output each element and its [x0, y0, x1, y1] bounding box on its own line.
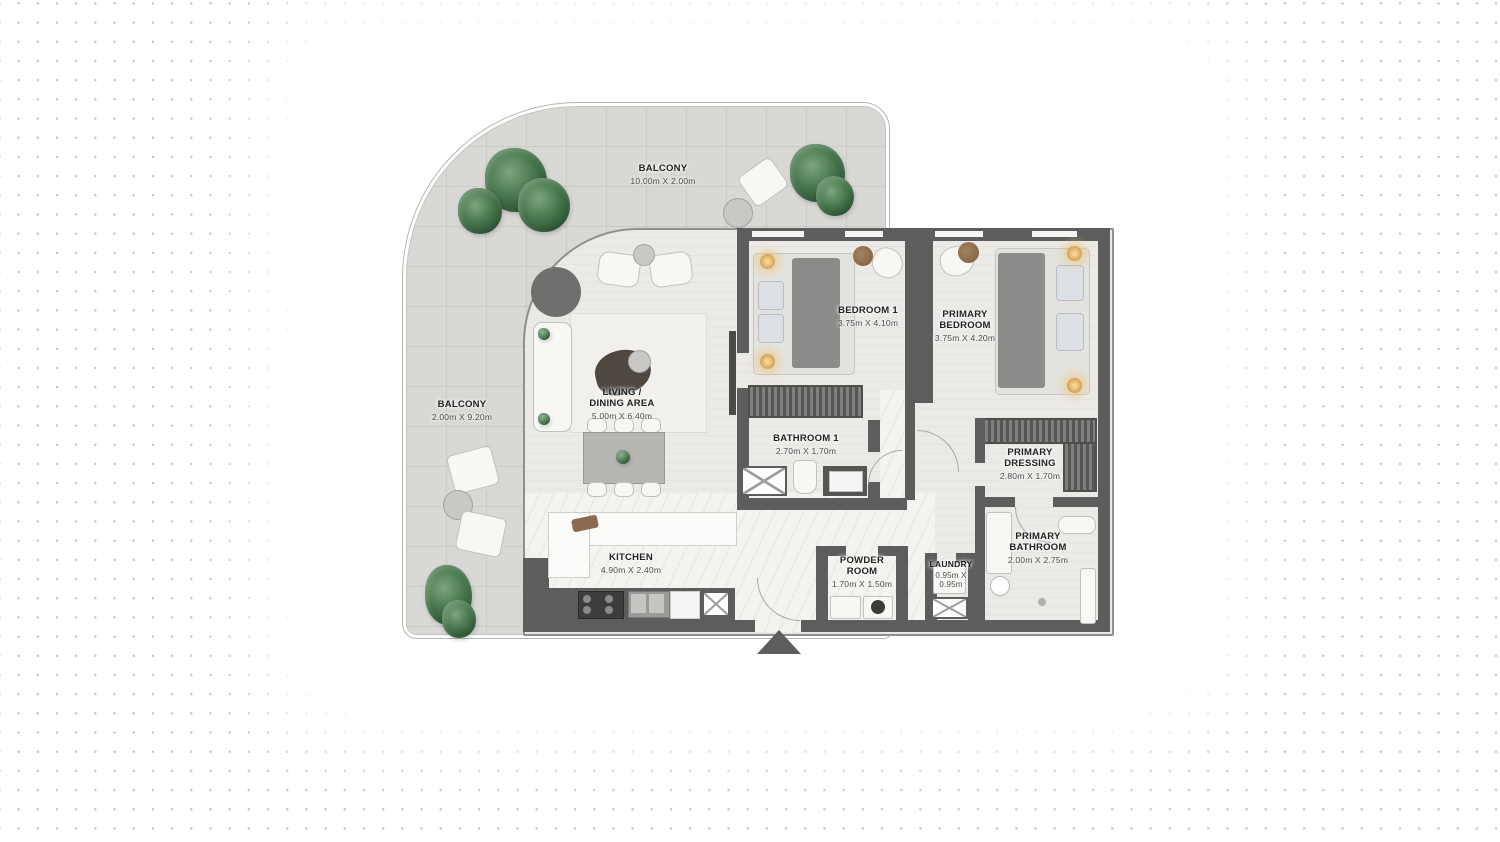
- window: [1032, 231, 1077, 237]
- room-dims: 1.70m X 1.50m: [832, 579, 892, 589]
- room-label-balcony-top: BALCONY 10.00m X 2.00m: [603, 164, 723, 186]
- room-name: BALCONY: [422, 400, 502, 411]
- room-label-primary-bedroom: PRIMARY BEDROOM 3.75m X 4.20m: [930, 310, 1000, 343]
- dressing-wardrobe: [977, 418, 1097, 444]
- dining-chair: [614, 482, 634, 497]
- room-dims: 3.75m X 4.10m: [838, 318, 898, 328]
- shower-bench: [1080, 568, 1096, 624]
- kitchen-counter: [670, 591, 700, 619]
- room-dims: 2.80m X 1.70m: [1000, 471, 1060, 481]
- pillow: [1056, 313, 1084, 351]
- plant-icon: [442, 600, 476, 638]
- powder-sink: [830, 596, 861, 619]
- room-name: BALCONY: [603, 164, 723, 175]
- side-table: [958, 242, 979, 263]
- laundry-appliance: [931, 597, 968, 619]
- room-dims: 2.00m X 2.75m: [1008, 555, 1068, 565]
- burner: [605, 606, 613, 614]
- wall-bathroom1-bottom: [737, 498, 907, 510]
- small-round-table: [633, 244, 655, 266]
- pillow: [1056, 265, 1084, 301]
- room-name: PRIMARY DRESSING: [995, 448, 1065, 470]
- wall-primary-bath-top: [985, 497, 1015, 507]
- wall-powder-left: [816, 546, 828, 622]
- burner: [583, 606, 591, 614]
- wall-primary-bath-top: [1053, 497, 1098, 507]
- room-label-powder-room: POWDER ROOM 1.70m X 1.50m: [832, 556, 892, 589]
- round-side-table: [531, 267, 581, 317]
- room-name: BEDROOM 1: [810, 306, 926, 317]
- room-dims: 0.95m X 0.95m: [928, 571, 974, 590]
- side-table: [853, 246, 873, 266]
- wall-bathroom1-right: [868, 420, 880, 452]
- room-name: LIVING / DINING AREA: [587, 388, 657, 410]
- room-label-kitchen: KITCHEN 4.90m X 2.40m: [581, 553, 681, 575]
- room-dims: 2.00m X 9.20m: [432, 412, 492, 422]
- plant-icon: [616, 450, 630, 464]
- dining-chair: [587, 482, 607, 497]
- room-name: BATHROOM 1: [750, 434, 862, 445]
- wall-bathroom1-right: [868, 482, 880, 510]
- toilet: [793, 460, 817, 494]
- room-dims: 2.70m X 1.70m: [776, 446, 836, 456]
- toilet-top-icon: [871, 600, 885, 614]
- room-label-living-dining: LIVING / DINING AREA 5.00m X 6.40m: [587, 388, 657, 421]
- wall-right: [1098, 228, 1110, 632]
- room-label-primary-dressing: PRIMARY DRESSING 2.80m X 1.70m: [995, 448, 1065, 481]
- plant-icon: [518, 178, 570, 232]
- room-label-primary-bathroom: PRIMARY BATHROOM 2.00m X 2.75m: [1003, 532, 1073, 565]
- dining-chair: [641, 482, 661, 497]
- burner: [583, 595, 591, 603]
- burner: [605, 595, 613, 603]
- plant-icon: [816, 176, 854, 216]
- room-label-balcony-left: BALCONY 2.00m X 9.20m: [422, 400, 502, 422]
- room-name: KITCHEN: [581, 553, 681, 564]
- floor-plan-page: BALCONY 10.00m X 2.00m BALCONY 2.00m X 9…: [0, 0, 1500, 842]
- bedroom1-wardrobe: [748, 385, 863, 418]
- shower-tray: [741, 466, 787, 496]
- plant-icon: [538, 413, 550, 425]
- room-dims: 4.90m X 2.40m: [601, 565, 661, 575]
- shower-drain: [1038, 598, 1046, 606]
- wall-bedroom1-left: [737, 228, 749, 353]
- bedside-lamp: [760, 254, 775, 269]
- plant-icon: [538, 328, 550, 340]
- floor-plan: BALCONY 10.00m X 2.00m BALCONY 2.00m X 9…: [400, 98, 1112, 660]
- room-name: POWDER ROOM: [832, 556, 892, 578]
- pillow: [758, 281, 784, 310]
- sink-basin: [829, 471, 863, 492]
- room-dims: 5.00m X 6.40m: [592, 411, 652, 421]
- room-label-bathroom-1: BATHROOM 1 2.70m X 1.70m: [750, 434, 862, 456]
- sink-bowl: [649, 594, 664, 613]
- dressing-wardrobe: [1063, 442, 1097, 492]
- wall-powder-right: [896, 546, 908, 622]
- bedside-lamp: [1067, 246, 1082, 261]
- balcony-round-table: [723, 198, 753, 228]
- room-dims: 10.00m X 2.00m: [630, 176, 695, 186]
- room-name: LAUNDRY: [927, 560, 975, 570]
- room-label-bedroom-1: BEDROOM 1 3.75m X 4.10m: [810, 306, 926, 328]
- tv-console: [729, 331, 736, 415]
- room-dims: 3.75m X 4.20m: [935, 333, 995, 343]
- room-name: PRIMARY BEDROOM: [930, 310, 1000, 332]
- plant-icon: [458, 188, 502, 234]
- bedside-lamp: [760, 354, 775, 369]
- wall-dressing-left: [975, 418, 985, 463]
- window: [935, 231, 983, 237]
- toilet: [990, 576, 1010, 596]
- pillow: [758, 314, 784, 343]
- room-label-laundry: LAUNDRY 0.95m X 0.95m: [927, 560, 975, 590]
- window: [845, 231, 883, 237]
- window: [752, 231, 804, 237]
- room-name: PRIMARY BATHROOM: [1003, 532, 1073, 554]
- bedside-lamp: [1067, 378, 1082, 393]
- bed-blanket: [998, 253, 1045, 388]
- sink-bowl: [631, 594, 646, 613]
- wall-hallway: [905, 403, 915, 500]
- round-pouf: [628, 350, 651, 373]
- entrance-arrow: [757, 630, 801, 654]
- kitchen-appliance: [702, 591, 730, 617]
